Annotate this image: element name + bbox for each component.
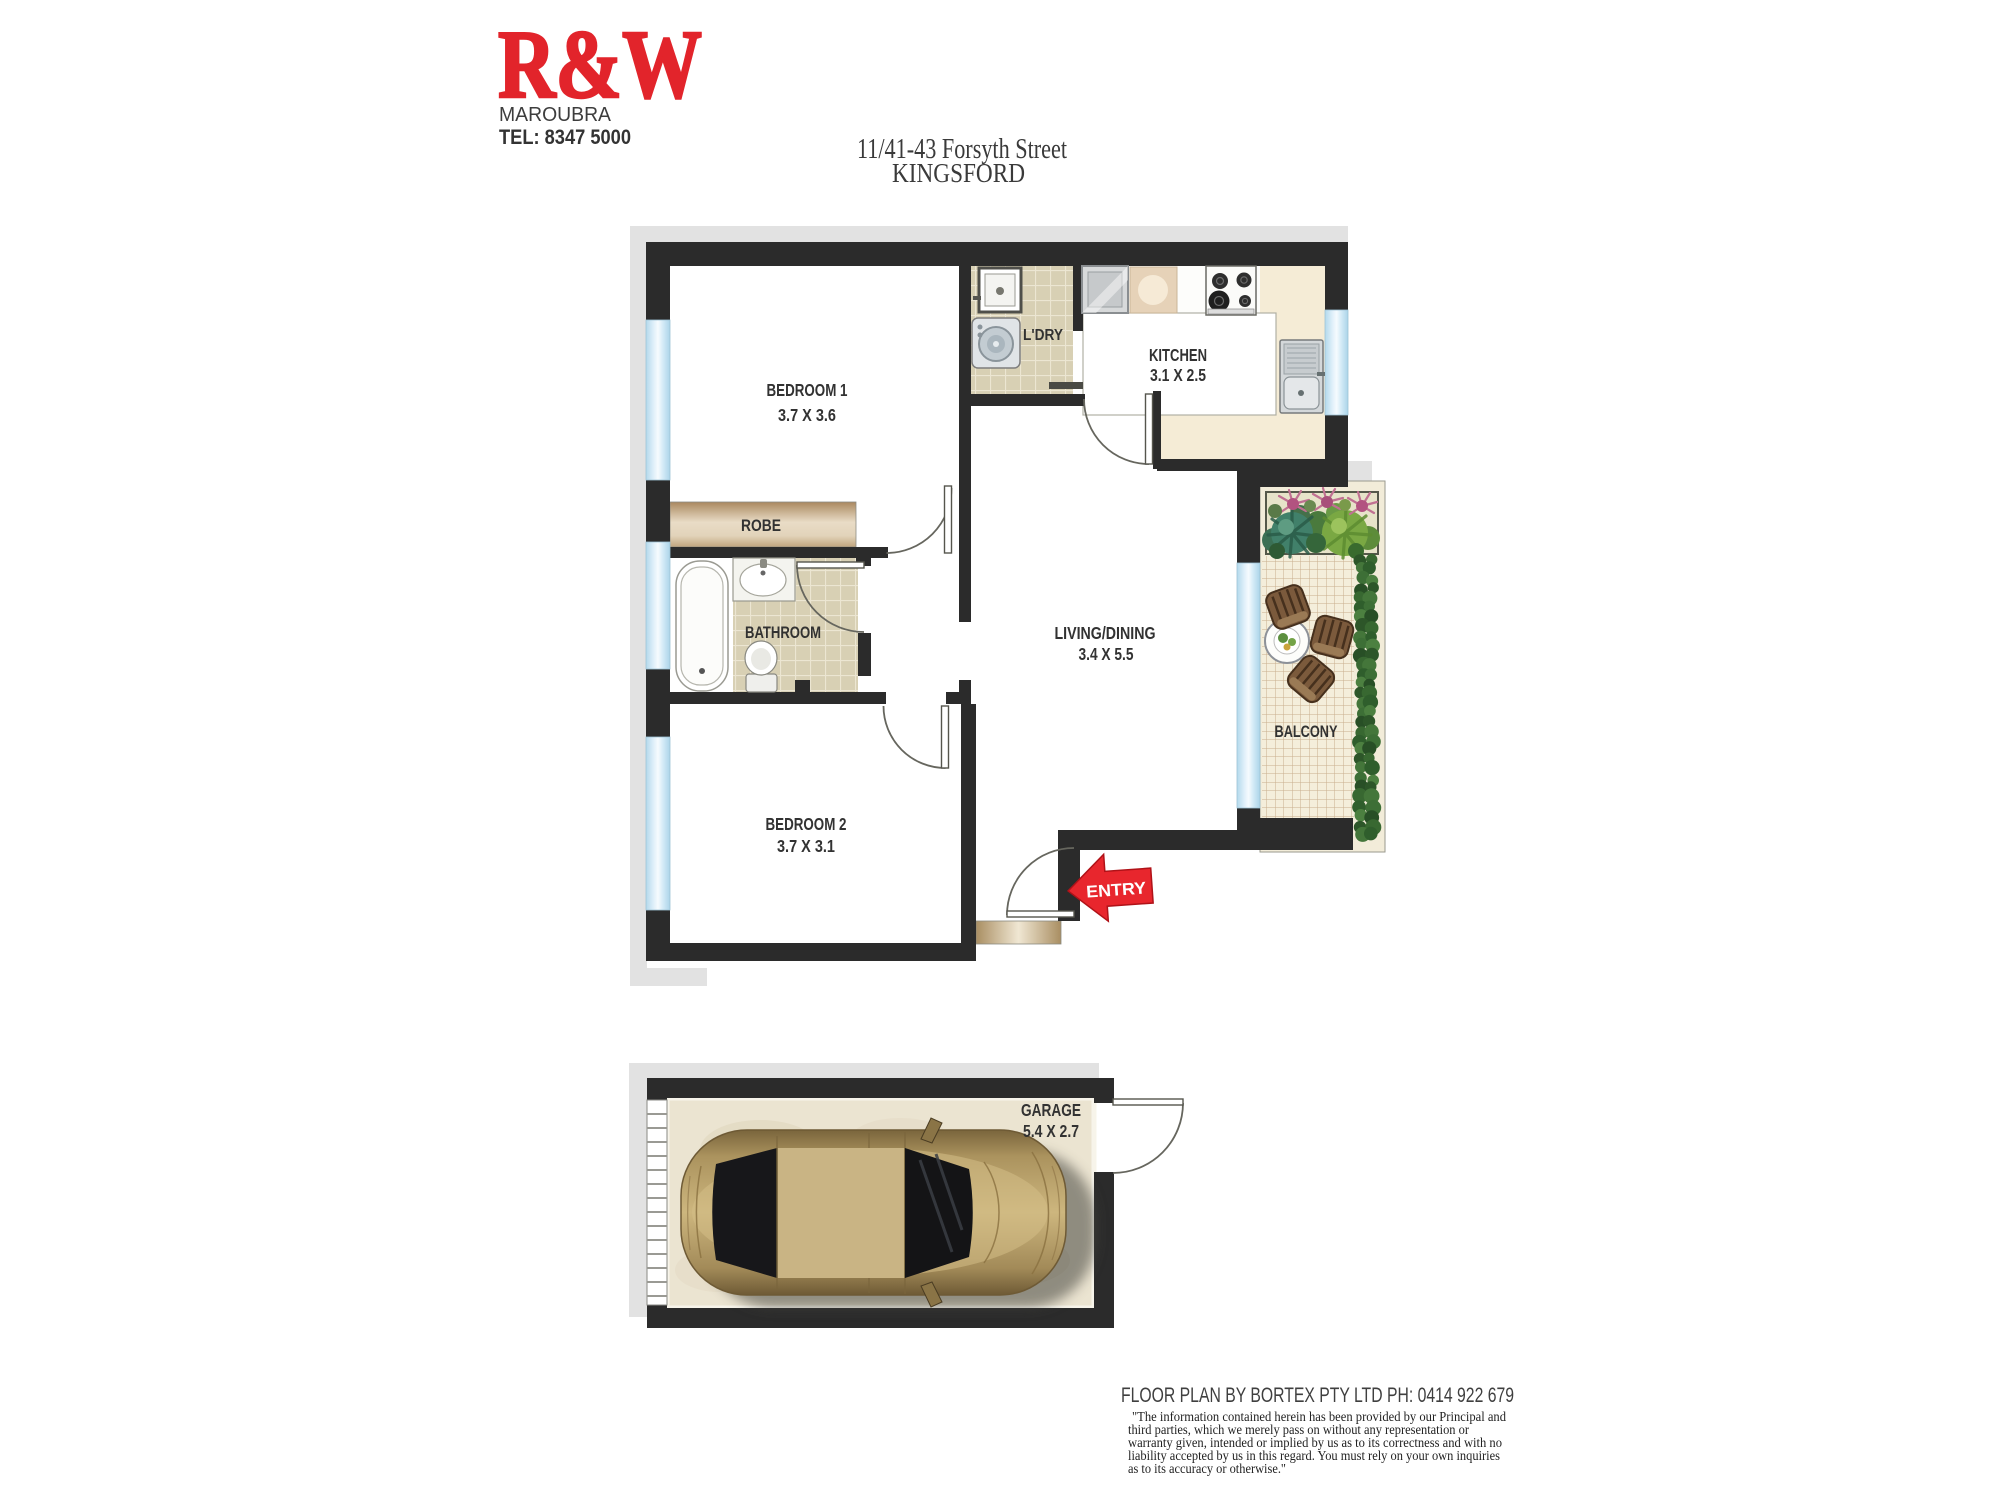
svg-text:5.4 X 2.7: 5.4 X 2.7 [1023,1121,1079,1141]
svg-text:BEDROOM 1: BEDROOM 1 [767,380,848,400]
svg-text:KITCHEN: KITCHEN [1149,345,1207,365]
svg-text:3.7 X 3.6: 3.7 X 3.6 [778,405,836,425]
svg-text:L'DRY: L'DRY [1023,327,1064,344]
svg-text:TEL: 8347 5000: TEL: 8347 5000 [499,126,631,149]
svg-text:KINGSFORD: KINGSFORD [892,158,1025,188]
svg-text:BEDROOM 2: BEDROOM 2 [766,814,847,834]
svg-text:as to its accuracy or otherwis: as to its accuracy or otherwise." [1128,1461,1286,1476]
svg-text:BATHROOM: BATHROOM [745,623,821,642]
svg-text:LIVING/DINING: LIVING/DINING [1055,623,1156,643]
svg-text:R&W: R&W [498,11,702,118]
svg-text:3.4 X 5.5: 3.4 X 5.5 [1079,644,1134,664]
svg-text:BALCONY: BALCONY [1275,722,1338,741]
svg-text:GARAGE: GARAGE [1021,1100,1081,1120]
svg-text:3.1 X 2.5: 3.1 X 2.5 [1150,365,1206,385]
svg-text:3.7 X 3.1: 3.7 X 3.1 [777,836,835,856]
svg-text:FLOOR PLAN BY BORTEX PTY LTD P: FLOOR PLAN BY BORTEX PTY LTD PH: 0414 92… [1121,1384,1514,1407]
svg-text:MAROUBRA: MAROUBRA [499,104,612,126]
svg-text:ROBE: ROBE [741,516,781,535]
